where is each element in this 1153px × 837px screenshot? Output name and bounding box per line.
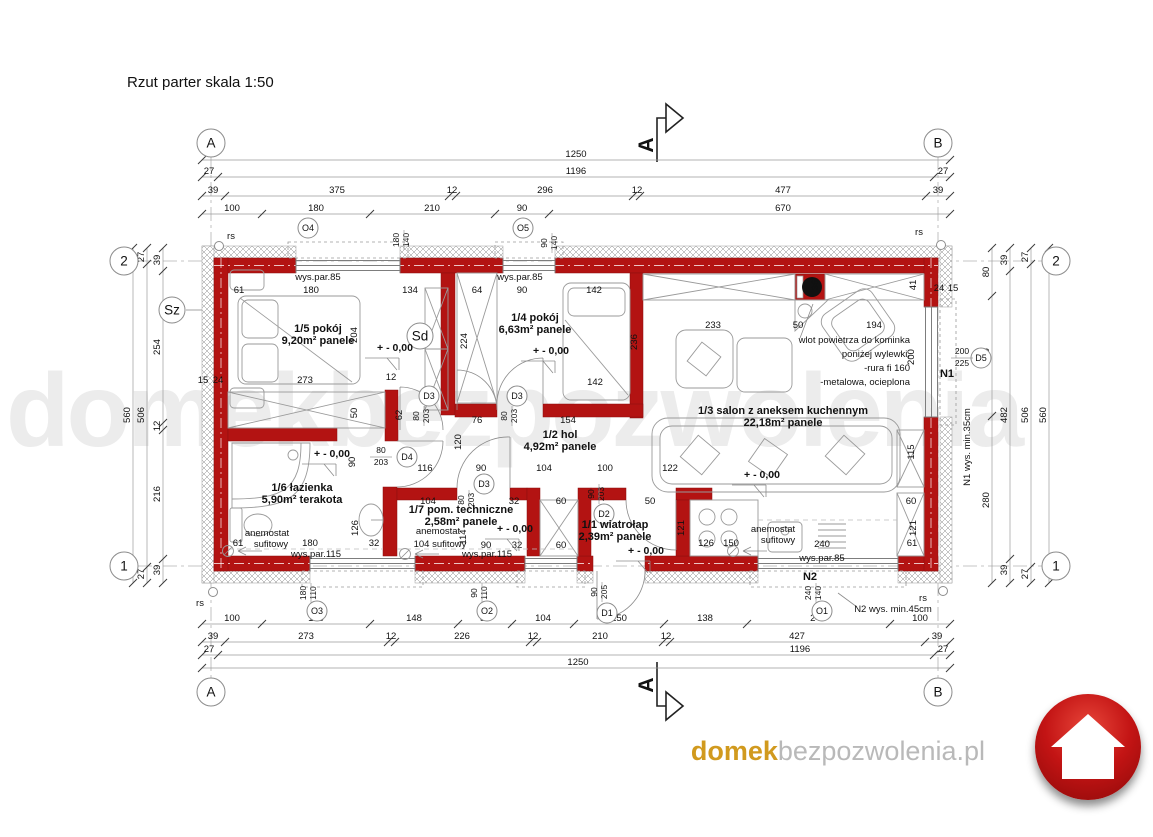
dim-label: 50: [645, 496, 656, 507]
annotation: wys.par.85: [496, 272, 542, 283]
dim-label: 280: [981, 492, 992, 508]
dim-label: 39: [932, 631, 943, 642]
annotation: wys.par.115: [290, 549, 341, 560]
annotation: wys.par.85: [294, 272, 340, 283]
room-label-1/5: 1/5 pokój: [294, 323, 342, 335]
dim-label: 670: [775, 203, 791, 214]
dim-label: 180: [308, 203, 324, 214]
dim-label: 120: [453, 434, 464, 450]
dim-label: 100: [597, 463, 613, 474]
floor-plan-drawing: A A 125027119627393751229612477391001802…: [0, 0, 1153, 837]
level-mark-label: + - 0,00: [377, 342, 413, 354]
window-O2: [517, 556, 585, 587]
opening-size: 90: [469, 588, 479, 598]
dim-label: 90: [517, 285, 528, 296]
room-area-1/4: 6,63m² panele: [499, 324, 572, 336]
opening-size: 80: [411, 411, 421, 421]
room-label-1/3: 1/3 salon z aneksem kuchennym: [698, 405, 868, 417]
rs-point: [937, 241, 946, 250]
dim-label: 61: [907, 538, 918, 549]
room-label-1/2: 1/2 hol: [543, 429, 578, 441]
dim-label: 560: [122, 407, 133, 423]
dim-label: 60: [906, 496, 917, 507]
dim-label: 122: [662, 463, 678, 474]
level-mark-label: + - 0,00: [314, 448, 350, 460]
dim-label: 180: [303, 285, 319, 296]
dim-label: 104: [535, 613, 551, 624]
dim-label: 142: [587, 377, 603, 388]
level-mark-icon: [365, 358, 399, 370]
annotation: anemostat: [416, 526, 461, 537]
dim-label: 210: [592, 631, 608, 642]
dim-label: 210: [424, 203, 440, 214]
dim-label: 138: [697, 613, 713, 624]
opening-size: 200: [955, 346, 969, 356]
dim-label: 61: [234, 285, 245, 296]
opening-marker-label: D4: [401, 452, 413, 462]
opening-size: 225: [955, 358, 969, 368]
dim-label: 482: [999, 407, 1010, 423]
dim-label: 60: [556, 540, 567, 551]
level-mark-icon: [521, 361, 555, 373]
dim-label: 273: [297, 375, 313, 386]
dim-label: 50: [793, 320, 804, 331]
annotation: N2 wys. min.45cm: [854, 604, 932, 615]
room-label-1/1: 1/1 wiatrołap: [582, 519, 649, 531]
dim-label: 226: [454, 631, 470, 642]
annotation: N1 wys. min.35cm: [962, 408, 973, 486]
annotation: -rura fi 160: [864, 363, 910, 374]
dim-label: 115: [906, 444, 917, 459]
dim-label: 224: [459, 333, 470, 349]
opening-marker-label: D5: [975, 353, 987, 363]
grid-marker-label: B: [933, 136, 942, 151]
dim-label: 39: [999, 255, 1010, 266]
dim-label: 375: [329, 185, 345, 196]
annotation: wlot powietrza do kominka: [798, 335, 911, 346]
window-O4: [288, 242, 408, 273]
dim-label: 100: [224, 613, 240, 624]
opening-size: 240: [803, 586, 813, 600]
dim-label: 76: [472, 415, 483, 426]
window-O3: [302, 556, 423, 587]
annotation: poniżej wylewki,: [842, 349, 910, 360]
home-arrow-icon: [1035, 694, 1141, 800]
opening-size: 203: [374, 457, 388, 467]
level-mark-icon: [732, 485, 766, 497]
dim-label: 50: [349, 408, 360, 419]
dim-label: 27: [204, 166, 215, 177]
dim-label: 560: [1038, 407, 1049, 423]
dim-label: 121: [908, 520, 919, 536]
opening-size: 80: [499, 411, 509, 421]
grid-marker-label: 1: [120, 559, 128, 574]
opening-marker-label: O4: [302, 223, 314, 233]
dim-label: 12: [386, 631, 397, 642]
opening-size: 203: [421, 409, 431, 423]
dim-label: 12: [528, 631, 539, 642]
dim-label: 39: [933, 185, 944, 196]
dim-label: 1196: [790, 644, 810, 655]
grid-marker-label: 1: [1052, 559, 1060, 574]
opening-size: 205: [599, 585, 609, 599]
dim-label: 64: [472, 285, 483, 296]
dim-label: 506: [136, 407, 147, 423]
level-mark-label: + - 0,00: [497, 523, 533, 535]
opening-size: 140: [549, 236, 559, 250]
dim-label: 12: [386, 372, 397, 383]
dim-label: 27: [938, 644, 949, 655]
dim-label: 12: [661, 631, 672, 642]
dim-label: 148: [406, 613, 422, 624]
dim-label: 194: [866, 320, 882, 331]
dim-label: 39: [208, 185, 219, 196]
dim-label: 180: [302, 538, 318, 549]
grid-marker-label: Sd: [412, 329, 429, 344]
dim-label: 100: [224, 203, 240, 214]
dim-label: 104: [536, 463, 552, 474]
grid-marker-label: 2: [1052, 254, 1060, 269]
dim-label: 134: [402, 285, 418, 296]
dim-label: 27: [1020, 252, 1031, 263]
rs-point: [209, 588, 218, 597]
dim-label: 150: [723, 538, 739, 549]
brand-domek: domek: [691, 736, 778, 766]
opening-size: 140: [813, 586, 823, 600]
dim-label: 236: [629, 334, 640, 350]
annotation: rs: [196, 598, 204, 609]
opening-size: 203: [509, 409, 519, 423]
dim-label: 90: [517, 203, 528, 214]
dim-label: 27: [1020, 569, 1031, 580]
grid-marker-label: Sz: [164, 303, 180, 318]
dim-label: 154: [560, 415, 576, 426]
floor-plan-page: domekbezpozwolenia: [0, 0, 1153, 837]
dim-label: 273: [298, 631, 314, 642]
room-area-1/5: 9,20m² panele: [282, 335, 355, 347]
website-brand[interactable]: domekbezpozwolenia.pl: [691, 736, 985, 767]
opening-size: 110: [479, 586, 489, 600]
dim-label: 296: [537, 185, 553, 196]
opening-marker-label: D3: [423, 391, 435, 401]
opening-size: 80: [376, 445, 386, 455]
section-label: A: [635, 137, 658, 152]
room-label-1/6: 1/6 łazienka: [271, 482, 333, 494]
dim-label: 12: [632, 185, 643, 196]
opening-marker-label: O5: [517, 223, 529, 233]
dim-label: 216: [152, 486, 163, 502]
dim-label: 1250: [567, 657, 588, 668]
dim-label: 32: [369, 538, 380, 549]
grid-marker-label: B: [933, 685, 942, 700]
dim-label: 62: [394, 410, 405, 421]
level-mark-label: + - 0,00: [744, 469, 780, 481]
dim-label: 1196: [566, 166, 586, 177]
dim-label: 142: [586, 285, 602, 296]
washbasin: [359, 504, 383, 536]
opening-size: 110: [308, 586, 318, 600]
window-D5-terrace: [924, 299, 956, 425]
dim-label: 12: [447, 185, 458, 196]
dim-label: 1250: [565, 149, 586, 160]
annotation: rs: [919, 593, 927, 604]
dim-label: 15: [948, 283, 959, 294]
rs-point: [939, 587, 948, 596]
page-title: Rzut parter skala 1:50: [127, 74, 274, 91]
section-mark-bottom: A: [635, 662, 683, 720]
level-mark-label: + - 0,00: [628, 545, 664, 557]
opening-marker-label: O3: [311, 606, 323, 616]
room-label-1/4: 1/4 pokój: [511, 312, 559, 324]
armchair: [676, 330, 733, 388]
opening-marker-label: O1: [816, 606, 828, 616]
annotation: anemostat: [751, 524, 796, 535]
opening-size: 180: [298, 586, 308, 600]
annotation: N2: [803, 571, 817, 583]
opening-size: 90: [586, 489, 596, 499]
dim-label: 24: [213, 375, 224, 386]
dim-label: 60: [556, 496, 567, 507]
opening-size: 90: [589, 587, 599, 597]
rs-point: [215, 242, 224, 251]
dim-label: 39: [208, 631, 219, 642]
opening-size: 140: [401, 233, 411, 247]
annotation: N1: [940, 368, 954, 380]
annotation: sufitowy: [254, 539, 289, 550]
dim-label: 36: [810, 280, 821, 291]
dim-label: 39: [152, 255, 163, 266]
dim-label: 506: [1020, 407, 1031, 423]
dim-label: 427: [789, 631, 805, 642]
dim-label: 90: [476, 463, 487, 474]
wardrobe-room-1-5: [228, 392, 385, 428]
section-label: A: [635, 677, 658, 692]
dim-label: 126: [698, 538, 714, 549]
coffee-table: [737, 338, 792, 392]
annotation: rs: [227, 231, 235, 242]
room-area-1/1: 2,39m² panele: [579, 531, 652, 543]
room-area-1/3: 22,18m² panele: [744, 417, 823, 429]
level-mark-label: + - 0,00: [533, 345, 569, 357]
opening-size: 180: [391, 233, 401, 247]
brand-rest: bezpozwolenia.pl: [778, 736, 985, 766]
dim-label: 121: [676, 520, 687, 536]
section-mark-top: A: [635, 104, 683, 162]
logo-home-icon[interactable]: [1035, 694, 1141, 800]
dim-label: 27: [938, 166, 949, 177]
annotation: -metalowa, ocieplona: [820, 377, 910, 388]
opening-size: 203: [596, 487, 606, 501]
room-label-1/7: 1/7 pom. techniczne: [409, 504, 514, 516]
dim-label: 80: [981, 267, 992, 278]
opening-marker-label: D2: [598, 509, 610, 519]
annotation: sufitowy: [761, 535, 796, 546]
annotation: anemostat: [245, 528, 290, 539]
dim-label: 39: [152, 565, 163, 576]
dim-label: 41: [908, 280, 919, 291]
dim-label: 27: [204, 644, 215, 655]
room-area-1/6: 5,90m² terakota: [262, 494, 344, 506]
grid-marker-label: A: [206, 136, 215, 151]
dim-label: 254: [152, 339, 163, 355]
dim-label: 39: [999, 565, 1010, 576]
dim-label: 15: [198, 375, 209, 386]
dim-label: 116: [417, 463, 432, 474]
annotation: wys.par.115: [461, 549, 512, 560]
dim-label: 32: [512, 540, 523, 551]
opening-marker-label: D1: [601, 608, 613, 618]
dim-label: 477: [775, 185, 791, 196]
dim-label: 233: [705, 320, 721, 331]
opening-marker-label: D3: [511, 391, 523, 401]
annotation: rs: [915, 227, 923, 238]
opening-marker-label: O2: [481, 606, 493, 616]
dim-label: 61: [233, 538, 244, 549]
opening-marker-label: D3: [478, 479, 490, 489]
room-area-1/2: 4,92m² panele: [524, 441, 597, 453]
dim-label: 12: [152, 421, 163, 432]
dim-label: 24: [934, 283, 945, 294]
dim-label: 126: [350, 520, 361, 536]
annotation: 104 sufitowy: [414, 539, 467, 550]
tv-wall-unit: [643, 274, 795, 300]
grid-marker-label: A: [206, 685, 215, 700]
dim-label: 240: [814, 539, 830, 550]
opening-size: 90: [539, 238, 549, 248]
grid-marker-label: 2: [120, 254, 128, 269]
annotation: wys.par.85: [798, 553, 844, 564]
